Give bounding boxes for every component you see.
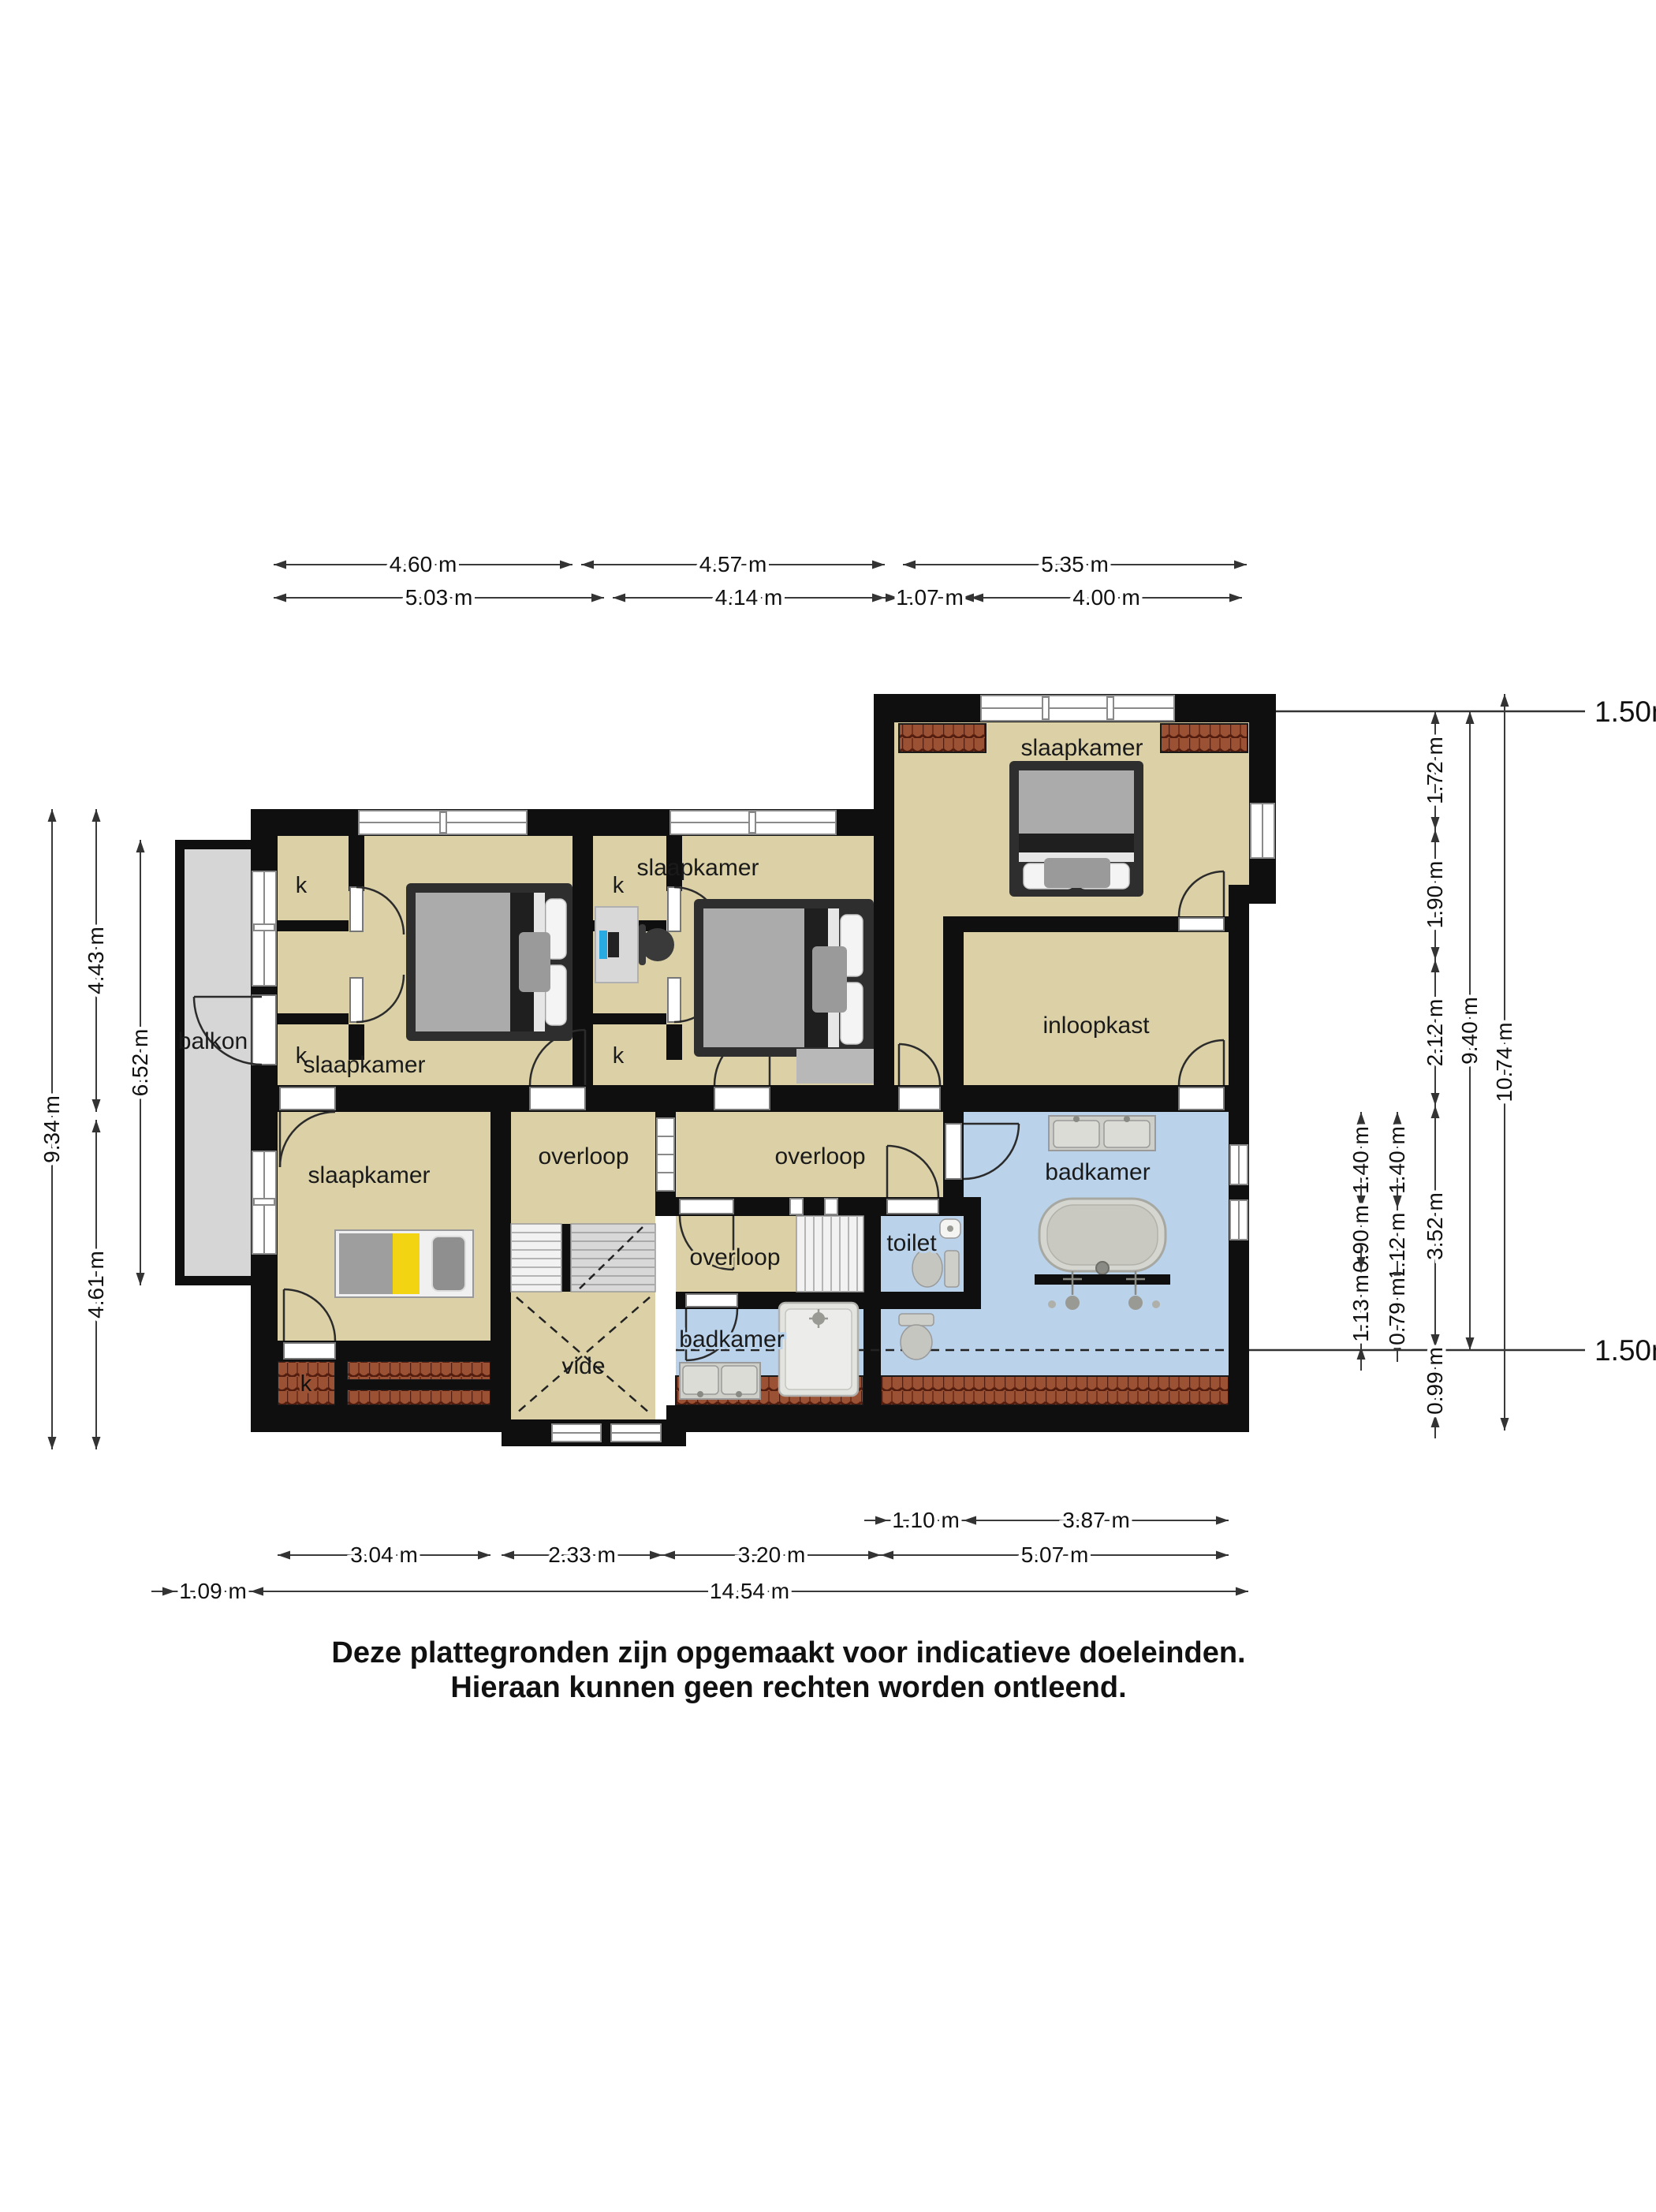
- dimension-label: 3.52 m: [1423, 1192, 1447, 1260]
- room-label-landing-main: overloop: [774, 1143, 865, 1169]
- window-landing-strip: [657, 1118, 674, 1191]
- wall-stair-divider: [561, 1224, 571, 1292]
- dimension-label: 5.07 m: [1021, 1542, 1089, 1567]
- room-label-bedroom-bl: slaapkamer: [308, 1162, 430, 1188]
- wall-balcony-bottom: [175, 1276, 251, 1285]
- bed-double-tl: [406, 883, 573, 1041]
- dimension-label: 2.12 m: [1423, 999, 1447, 1067]
- line-150-top-label: 1.50m lijn: [1594, 696, 1656, 728]
- line-150-group: [1249, 711, 1585, 1350]
- wall-outer-bottom-left: [251, 1405, 511, 1432]
- stairs-flight-gray: [571, 1224, 655, 1292]
- dimension: 1.72 m: [1423, 711, 1447, 830]
- monitor-body: [608, 932, 619, 957]
- window-bathroom-main-a: [1230, 1145, 1248, 1184]
- disclaimer-line2: Hieraan kunnen geen rechten worden ontle…: [450, 1671, 1126, 1704]
- window-balcony-upper: [252, 871, 276, 986]
- room-label-walkin-closet: inloopkast: [1042, 1013, 1150, 1039]
- toilet-fixture-main: [899, 1314, 934, 1360]
- dimension: 3.20 m: [662, 1542, 881, 1567]
- room-label-bedroom-mid: slaapkamer: [636, 855, 759, 881]
- wall-bedroom-mid-right: [874, 694, 894, 1112]
- wall-outer-bottom-right: [676, 1405, 1249, 1432]
- wall-bedroom-divider-1: [573, 809, 593, 1085]
- walkin-closet-floor: [964, 932, 1229, 1085]
- rug: [796, 1049, 874, 1084]
- bathtub: [1039, 1199, 1166, 1274]
- dormer-roof-left: [899, 724, 986, 752]
- wall-roof-strip-divider: [347, 1380, 490, 1389]
- closet-label-k3: k: [613, 873, 625, 898]
- dormer-roof-right: [1161, 724, 1248, 752]
- dimension: 2.12 m: [1423, 960, 1447, 1106]
- dimension: 3.04 m: [278, 1542, 490, 1567]
- window-bathroom-main-b: [1230, 1200, 1248, 1240]
- dimension-label: 4.00 m: [1072, 585, 1140, 610]
- roof-strip-right: [881, 1376, 1229, 1405]
- floorplan-canvas: 1.50m lijn 1.50m lijn slaapkamer slaapka…: [0, 0, 1656, 2208]
- roof-strip-left-b: [347, 1389, 490, 1405]
- dimension: 9.34 m: [39, 809, 64, 1449]
- dimension-label: 6.52 m: [128, 1029, 152, 1097]
- dimension-label: 9.34 m: [39, 1095, 64, 1163]
- dimension-label: 5.35 m: [1041, 552, 1109, 576]
- wall-k1-bottom: [278, 920, 349, 931]
- dimension: 4.43 m: [84, 809, 108, 1112]
- wall-k1-side: [349, 836, 364, 891]
- room-label-balcony: balkon: [178, 1028, 248, 1054]
- wall-balcony-top: [175, 840, 251, 849]
- dimension: 5.07 m: [881, 1542, 1229, 1567]
- bed-single-bl: [335, 1230, 473, 1297]
- dimension-label: 3.20 m: [738, 1542, 806, 1567]
- room-label-landing-left: overloop: [538, 1143, 628, 1169]
- window-bedroom-tl-top: [359, 811, 527, 834]
- dimension-label: 4.57 m: [699, 552, 767, 576]
- room-label-void: vide: [561, 1353, 605, 1379]
- line-150-bottom-label: 1.50m lijn: [1594, 1334, 1656, 1367]
- bedroom-tr-hall-strip: [894, 916, 943, 1085]
- window-bedroom-bl-left: [252, 1151, 276, 1254]
- bedroom-bl-floor: [278, 1112, 490, 1341]
- toilet-basin: [940, 1219, 960, 1238]
- dimension-label: 1.72 m: [1423, 737, 1447, 804]
- room-label-bedroom-tl: slaapkamer: [303, 1052, 425, 1078]
- bed-double-tr: [1009, 761, 1143, 897]
- window-stairhead-a: [790, 1199, 803, 1214]
- dimension-label: 4.60 m: [390, 552, 457, 576]
- wall-bedroom-bl-right: [490, 1085, 511, 1405]
- room-label-bedroom-tr: slaapkamer: [1020, 735, 1143, 761]
- wall-balcony-left: [175, 840, 185, 1285]
- dimension: 2.33 m: [502, 1542, 662, 1567]
- dimension-label: 3.87 m: [1062, 1508, 1130, 1532]
- dimension: 5.03 m: [274, 585, 604, 610]
- dimension: 4.60 m: [274, 552, 573, 576]
- disclaimer-line1: Deze plattegronden zijn opgemaakt voor i…: [331, 1636, 1245, 1669]
- room-label-bathroom-small: badkamer: [679, 1326, 784, 1352]
- sink-double-small: [680, 1363, 760, 1399]
- dimension: 6.52 m: [128, 840, 152, 1285]
- wall-k4-top: [593, 1013, 666, 1024]
- window-stairhead-b: [825, 1199, 837, 1214]
- dimension-label: 2.33 m: [548, 1542, 616, 1567]
- shower-small: [779, 1303, 858, 1396]
- dimension: 4.14 m: [613, 585, 885, 610]
- closet-label-k5: k: [300, 1371, 312, 1397]
- window-bedroom-mid-top: [670, 811, 836, 834]
- dimension: 3.52 m: [1423, 1106, 1447, 1347]
- dimension: 3.87 m: [964, 1508, 1229, 1532]
- stairs-flight-white: [511, 1224, 561, 1292]
- dimension-label: 1.09 m: [179, 1579, 247, 1603]
- dimension: 5.35 m: [903, 552, 1247, 576]
- dimension: 1.07 m: [875, 585, 985, 610]
- stairs-main: [796, 1216, 863, 1292]
- bed-double-mid: [694, 899, 874, 1057]
- floorplan-page: 1.50m lijn 1.50m lijn slaapkamer slaapka…: [0, 0, 1656, 2208]
- dimension-label: 1.07 m: [896, 585, 964, 610]
- room-label-bathroom-main: badkamer: [1045, 1159, 1150, 1185]
- dimension-label: 1.10 m: [892, 1508, 960, 1532]
- dimension: 4.00 m: [971, 585, 1242, 610]
- room-label-landing-lower: overloop: [689, 1244, 780, 1270]
- desk: [595, 907, 638, 983]
- closet-label-k1: k: [296, 873, 308, 898]
- dimension-label: 3.04 m: [350, 1542, 418, 1567]
- window-void-bump-a: [552, 1424, 601, 1442]
- dimension-label: 1.90 m: [1423, 861, 1447, 929]
- closet-label-k4: k: [613, 1043, 625, 1069]
- window-bedroom-tr-right: [1251, 804, 1274, 858]
- dimension-label: 4.61 m: [84, 1251, 108, 1319]
- dimension: 9.40 m: [1457, 711, 1482, 1350]
- dimension-label: 1.40 m: [1348, 1126, 1373, 1194]
- wall-toilet-bottom: [863, 1292, 981, 1309]
- window-bedroom-tr-top: [981, 696, 1174, 721]
- dimension: 10.74 m: [1492, 694, 1516, 1431]
- room-label-toilet: toilet: [886, 1230, 937, 1256]
- wall-bedroom-tr-right: [1249, 694, 1276, 904]
- dimension: 14.54 m: [251, 1579, 1248, 1603]
- window-void-bump-b: [611, 1424, 661, 1442]
- wall-k2-top: [278, 1013, 349, 1024]
- closet-label-k2: k: [296, 1043, 308, 1069]
- dimension-label: 1.13 m: [1348, 1274, 1373, 1342]
- dimension-label: 10.74 m: [1492, 1022, 1516, 1102]
- sink-double-main: [1049, 1116, 1155, 1151]
- wall-roof-closet-divider: [335, 1341, 347, 1405]
- dimension-label: 4.14 m: [715, 585, 783, 610]
- dimension-label: 14.54 m: [710, 1579, 789, 1603]
- roof-strip-left-a: [347, 1361, 490, 1380]
- dimension-label: 1.40 m: [1385, 1126, 1409, 1194]
- monitor-screen: [599, 931, 607, 959]
- dimension: 0.99 m: [1423, 1323, 1447, 1438]
- wall-k4-side: [666, 1024, 682, 1060]
- dimension-label: 0.99 m: [1423, 1347, 1447, 1415]
- dimension: 4.57 m: [581, 552, 885, 576]
- dimension-label: 9.40 m: [1457, 997, 1482, 1065]
- balcony-floor: [185, 849, 251, 1276]
- dimension-label: 5.03 m: [405, 585, 473, 610]
- dimension-label: 0.79 m: [1385, 1278, 1409, 1345]
- dimension-label: 4.43 m: [84, 927, 108, 994]
- dimension: 4.61 m: [84, 1120, 108, 1449]
- dimension: 1.90 m: [1423, 830, 1447, 960]
